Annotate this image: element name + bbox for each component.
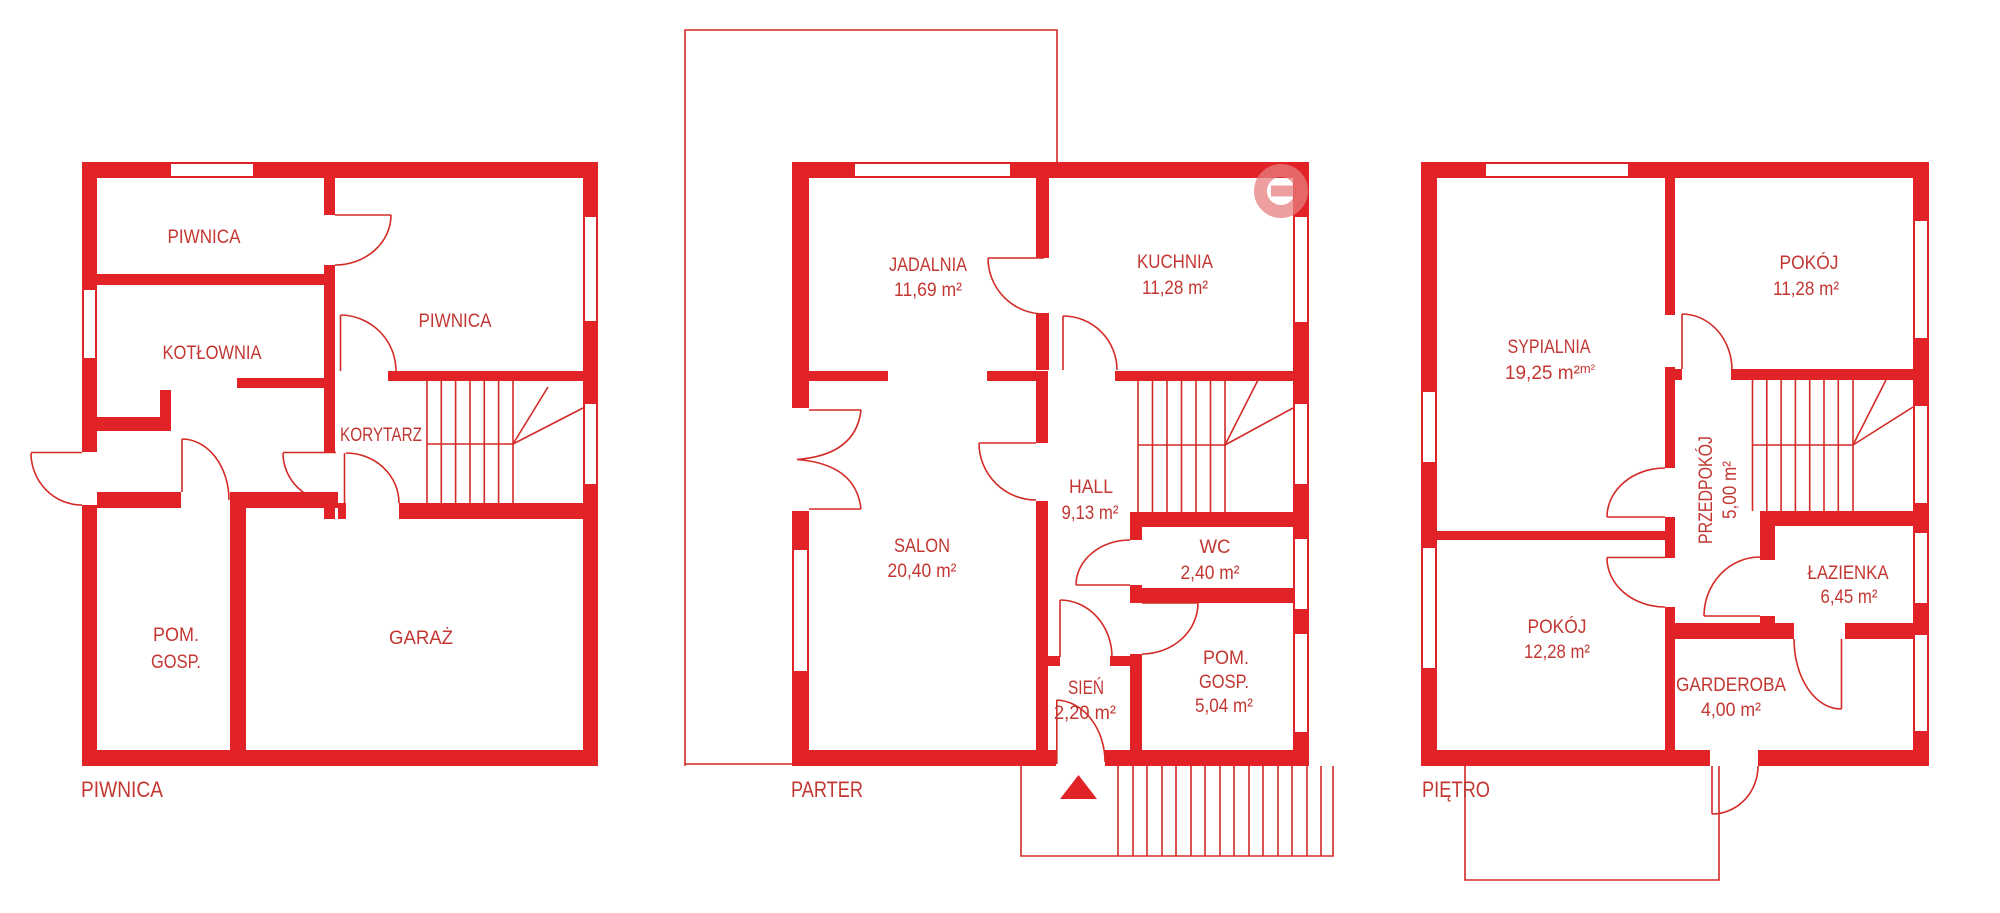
svg-text:JADALNIA: JADALNIA [889,255,967,276]
svg-text:PRZEDPOKÓJ: PRZEDPOKÓJ [1695,436,1717,544]
svg-text:6,45 m²: 6,45 m² [1821,587,1878,608]
svg-text:5,04 m²: 5,04 m² [1195,696,1253,717]
svg-text:PIĘTRO: PIĘTRO [1422,777,1490,802]
svg-text:SIEŃ: SIEŃ [1068,678,1104,699]
svg-text:SYPIALNIA: SYPIALNIA [1508,337,1591,358]
svg-text:POM.: POM. [1203,648,1249,669]
svg-text:11,69 m²: 11,69 m² [894,280,962,301]
svg-text:9,13 m²: 9,13 m² [1062,503,1119,524]
svg-text:PIWNICA: PIWNICA [168,227,241,248]
svg-text:PIWNICA: PIWNICA [419,311,492,332]
svg-text:POKÓJ: POKÓJ [1780,252,1839,274]
svg-text:POM.: POM. [153,625,199,646]
svg-text:4,00 m²: 4,00 m² [1701,700,1761,721]
svg-text:POKÓJ: POKÓJ [1528,616,1587,638]
svg-text:PARTER: PARTER [791,777,863,802]
svg-text:ŁAZIENKA: ŁAZIENKA [1808,563,1889,584]
svg-text:GOSP.: GOSP. [151,652,201,673]
svg-text:5,00 m²: 5,00 m² [1720,461,1741,519]
svg-text:2,20 m²: 2,20 m² [1054,703,1116,724]
svg-text:PIWNICA: PIWNICA [81,777,163,802]
svg-text:HALL: HALL [1069,477,1113,498]
svg-text:WC: WC [1200,537,1231,558]
svg-text:GARAŻ: GARAŻ [389,628,453,649]
svg-text:KOTŁOWNIA: KOTŁOWNIA [163,343,262,364]
svg-text:2,40 m²: 2,40 m² [1181,563,1240,584]
svg-text:12,28 m²: 12,28 m² [1524,642,1590,663]
svg-text:11,28 m²: 11,28 m² [1142,278,1208,299]
svg-text:SALON: SALON [894,536,950,557]
svg-text:GARDEROBA: GARDEROBA [1676,675,1786,696]
svg-text:KUCHNIA: KUCHNIA [1137,252,1213,273]
svg-text:GOSP.: GOSP. [1199,672,1249,693]
svg-text:KORYTARZ: KORYTARZ [340,425,422,446]
svg-text:11,28 m²: 11,28 m² [1773,279,1839,300]
svg-text:20,40 m²: 20,40 m² [888,561,957,582]
